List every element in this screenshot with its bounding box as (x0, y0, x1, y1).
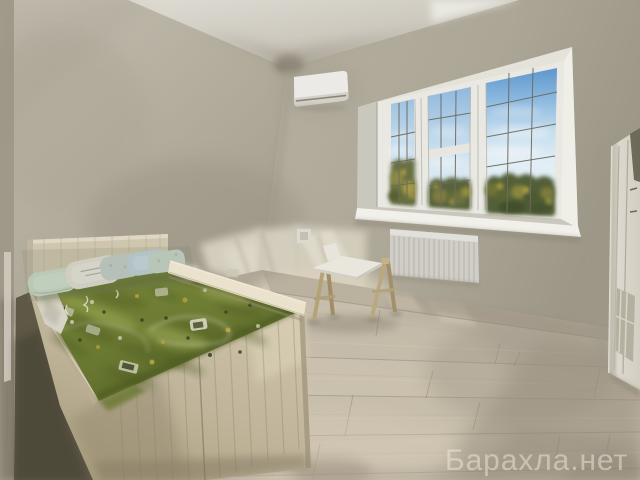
svg-text:Барахла.нет: Барахла.нет (445, 444, 628, 477)
